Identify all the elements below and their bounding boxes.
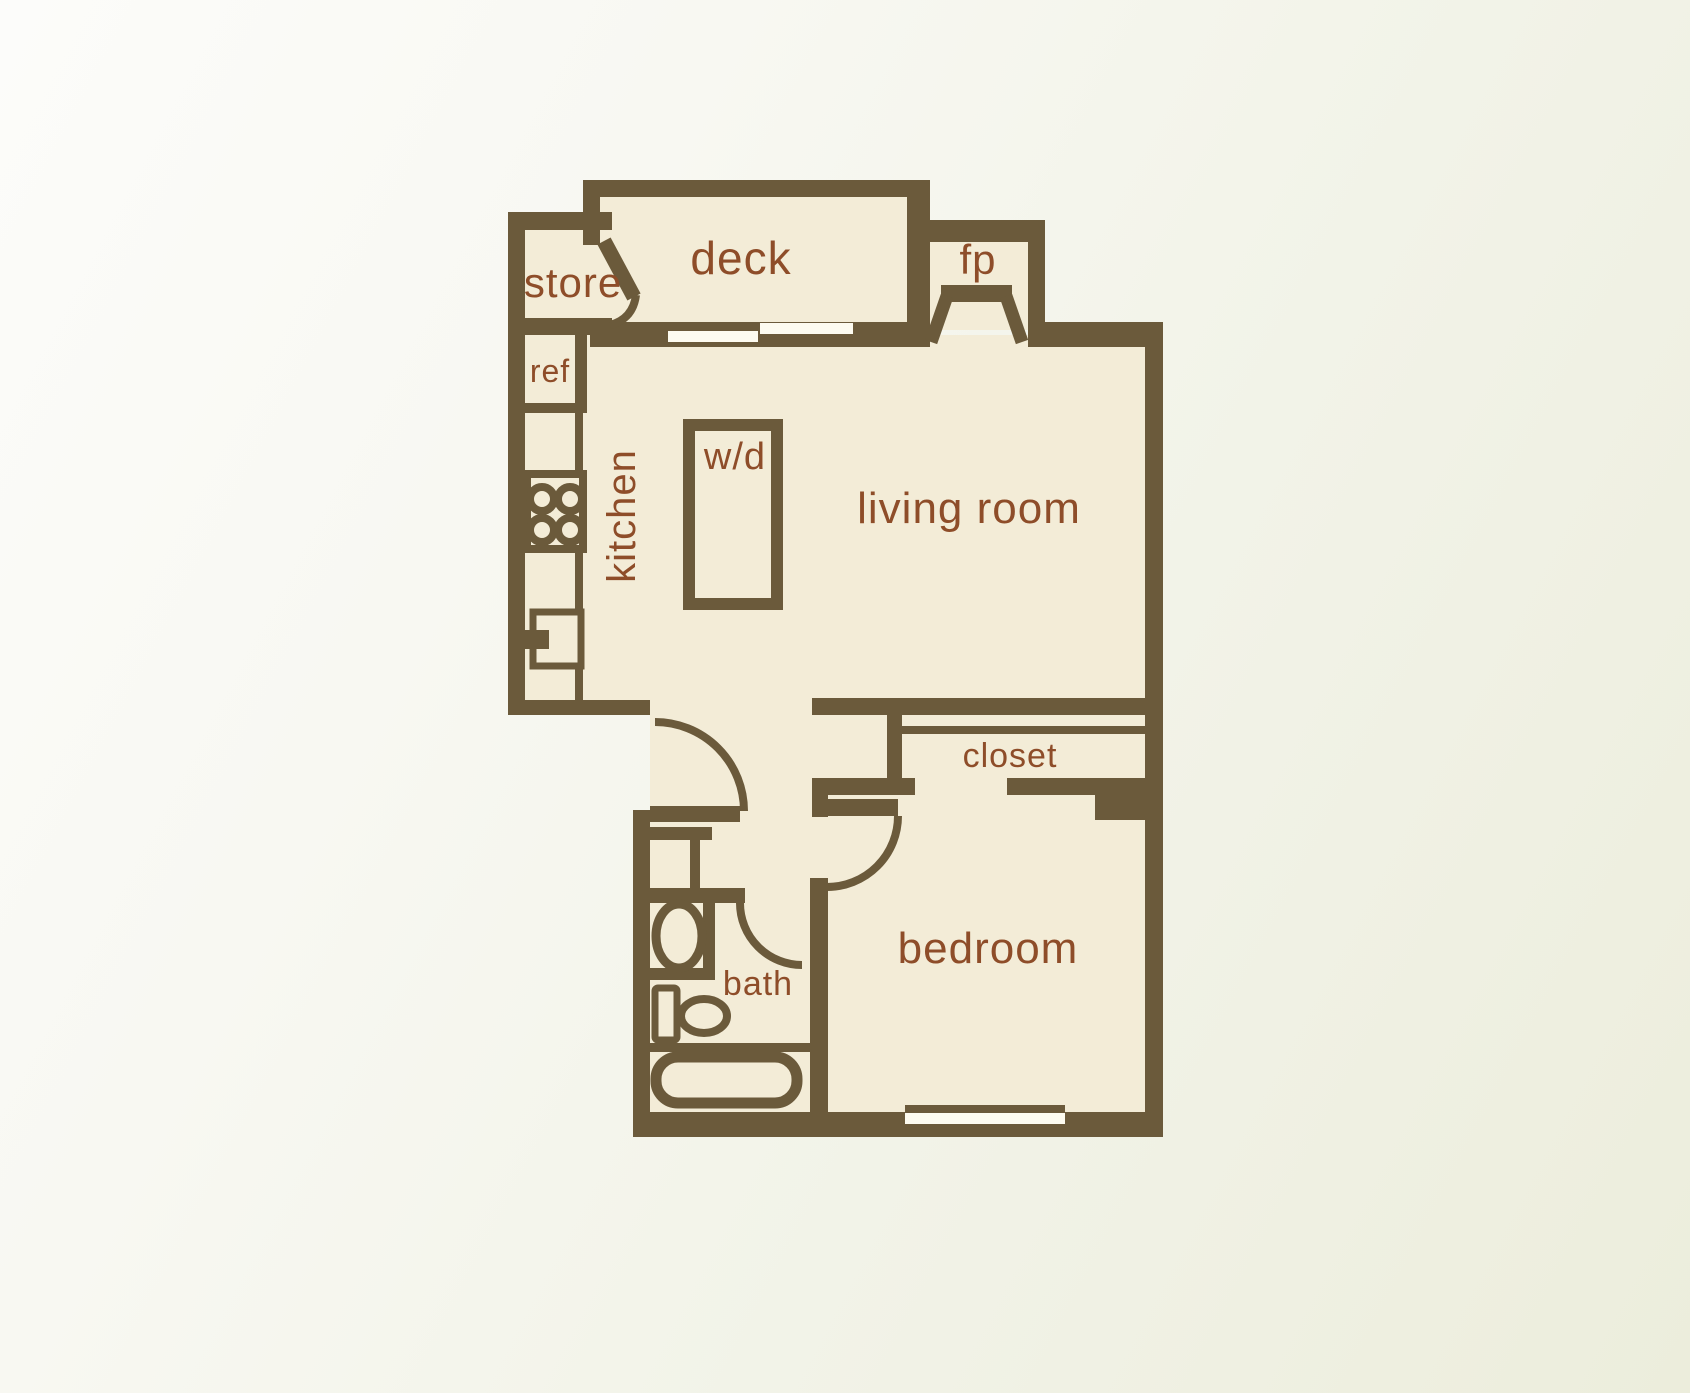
slider-panel-1	[668, 331, 758, 342]
wall-ref-right	[575, 318, 587, 413]
vanity-sink-oval	[656, 904, 702, 968]
floor-plan-drawing: storedeckfprefkitchenw/dliving roomclose…	[0, 0, 1690, 1393]
label-ref: ref	[530, 353, 570, 389]
toilet-tank	[655, 988, 677, 1040]
window-inner-line	[905, 1105, 1065, 1113]
bedroom-window	[905, 1113, 1065, 1124]
wall-bath-left	[633, 810, 650, 1137]
wall-kitchen-bottom	[508, 700, 650, 715]
bathtub	[656, 1057, 797, 1103]
wall-bottom	[633, 1112, 1163, 1137]
label-kitchen: kitchen	[600, 449, 644, 583]
label-bedroom: bedroom	[898, 924, 1079, 973]
label-living-room: living room	[857, 484, 1081, 533]
toilet-divider	[648, 1043, 810, 1052]
wall-closet-end-block	[1095, 778, 1147, 820]
vanity-divider	[690, 840, 700, 890]
door-nook-floor	[808, 817, 832, 879]
slider-panel-2	[760, 323, 853, 334]
wall-bath-top	[650, 806, 740, 822]
label-deck: deck	[690, 232, 791, 284]
toilet-bowl	[681, 999, 727, 1033]
label-wd: w/d	[703, 436, 766, 478]
label-bath: bath	[723, 965, 793, 1003]
wall-deck-left	[583, 180, 600, 245]
floor-plan: storedeckfprefkitchenw/dliving roomclose…	[0, 0, 1690, 1393]
bedroom-door-leaf	[826, 799, 898, 816]
wall-closet-left-tab	[812, 795, 828, 817]
closet-track	[902, 726, 1145, 734]
label-store: store	[524, 259, 622, 306]
wall-livingroom-bottom	[812, 698, 1163, 715]
label-closet: closet	[963, 737, 1058, 775]
wall-deck-top	[583, 180, 930, 197]
wall-right	[1145, 322, 1163, 1137]
wall-ref-bottom	[508, 403, 587, 413]
label-fp: fp	[959, 236, 996, 283]
sink-faucet	[521, 630, 549, 649]
wall-bedroom-left	[810, 878, 828, 1137]
wall-top-right	[1028, 322, 1163, 347]
wall-closet-bottom-left	[812, 778, 915, 795]
vanity-counter-top	[650, 827, 712, 840]
wall-bath-mid	[650, 888, 745, 903]
